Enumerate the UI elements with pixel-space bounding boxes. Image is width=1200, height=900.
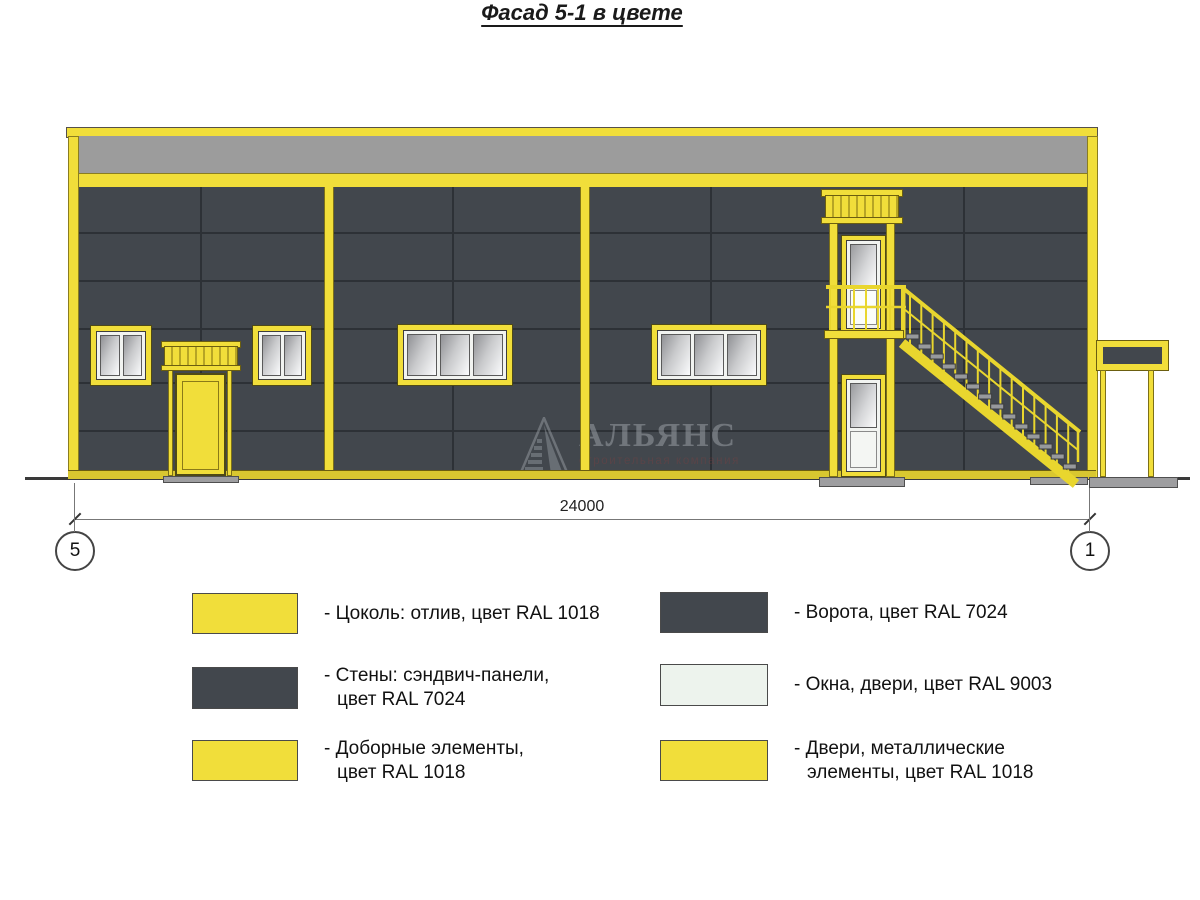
stair-midrail bbox=[904, 309, 1078, 450]
legend-swatch-yellow bbox=[192, 740, 298, 781]
legend-item-plinth: - Цоколь: отлив, цвет RAL 1018 bbox=[192, 593, 600, 634]
stair-tread bbox=[1039, 444, 1052, 449]
stair-tread bbox=[979, 394, 992, 399]
legend-swatch-dark-gray bbox=[660, 592, 768, 633]
drawing-title: Фасад 5-1 в цвете bbox=[0, 0, 1164, 26]
door-leaf bbox=[182, 381, 219, 470]
window-pane bbox=[407, 334, 437, 376]
alliance-triangle-logo-icon bbox=[518, 417, 570, 478]
legend-label: - Ворота, цвет RAL 7024 bbox=[794, 601, 1008, 625]
right-canopy-frame bbox=[1097, 341, 1168, 370]
window-triple-2 bbox=[651, 324, 767, 386]
watermark: АЛЬЯНС строительная компания bbox=[518, 417, 740, 478]
legend-swatch-dark-gray bbox=[192, 667, 298, 709]
stair-tread bbox=[1063, 464, 1076, 469]
right-canopy-pad bbox=[1089, 477, 1178, 488]
entrance-canopy-base bbox=[161, 365, 241, 371]
grid-axis-marker-5: 5 bbox=[55, 531, 95, 571]
exterior-staircase bbox=[820, 275, 1092, 490]
window-pane bbox=[694, 334, 724, 376]
legend-swatch-yellow bbox=[660, 740, 768, 781]
right-canopy-post-left bbox=[1100, 370, 1106, 477]
right-canopy-post-right bbox=[1148, 370, 1154, 477]
facade-column-trim bbox=[324, 187, 334, 471]
legend-swatch-yellow bbox=[192, 593, 298, 634]
window-sash bbox=[96, 331, 146, 380]
window-sash bbox=[258, 331, 306, 380]
stair-tread bbox=[991, 404, 1004, 409]
legend-item-gates: - Ворота, цвет RAL 7024 bbox=[660, 592, 1008, 633]
stair-tread bbox=[1003, 414, 1016, 419]
stair-tread bbox=[1051, 454, 1064, 459]
window-double-1 bbox=[90, 325, 152, 386]
window-pane bbox=[473, 334, 503, 376]
legend-swatch-white bbox=[660, 664, 768, 706]
stair-tread bbox=[942, 364, 955, 369]
window-pane bbox=[262, 335, 281, 376]
legend-label: - Двери, металлические элементы, цвет RA… bbox=[794, 737, 1033, 784]
legend-label: - Цоколь: отлив, цвет RAL 1018 bbox=[324, 602, 600, 626]
legend-item-metal-doors: - Двери, металлические элементы, цвет RA… bbox=[660, 737, 1033, 784]
metal-door-yellow bbox=[175, 373, 226, 476]
window-pane bbox=[123, 335, 143, 376]
door-threshold-pad bbox=[163, 476, 239, 483]
window-pane bbox=[661, 334, 691, 376]
stair-tread bbox=[906, 334, 919, 339]
window-sash bbox=[403, 330, 507, 380]
parapet-band bbox=[77, 136, 1089, 174]
window-sash bbox=[657, 330, 761, 380]
corner-column-left bbox=[68, 136, 79, 479]
stair-tread bbox=[918, 344, 931, 349]
watermark-name: АЛЬЯНС bbox=[579, 417, 740, 454]
entrance-canopy bbox=[164, 346, 238, 367]
stair-tread bbox=[930, 354, 943, 359]
facade-column-trim bbox=[580, 187, 590, 471]
legend-item-walls: - Стены: сэндвич-панели, цвет RAL 7024 bbox=[192, 664, 549, 711]
watermark-subtitle: строительная компания bbox=[579, 455, 740, 467]
legend-label: - Окна, двери, цвет RAL 9003 bbox=[794, 673, 1052, 697]
window-pane bbox=[100, 335, 120, 376]
stair-tread bbox=[1015, 424, 1028, 429]
stair-tread bbox=[954, 374, 967, 379]
watermark-text: АЛЬЯНС строительная компания bbox=[579, 417, 740, 467]
window-pane bbox=[440, 334, 470, 376]
canopy-post-right bbox=[227, 369, 232, 476]
legend-item-trim-elements: - Доборные элементы, цвет RAL 1018 bbox=[192, 737, 524, 784]
window-double-2 bbox=[252, 325, 312, 386]
window-triple-1 bbox=[397, 324, 513, 386]
window-pane bbox=[727, 334, 757, 376]
canopy-post-left bbox=[168, 369, 173, 476]
dimension-label: 24000 bbox=[482, 498, 682, 516]
grid-axis-marker-1: 1 bbox=[1070, 531, 1110, 571]
dimension-line bbox=[75, 519, 1090, 520]
tower-canopy bbox=[825, 195, 899, 219]
stair-tread bbox=[967, 384, 980, 389]
stair-tread bbox=[1027, 434, 1040, 439]
window-pane bbox=[284, 335, 303, 376]
extension-line-left bbox=[74, 483, 75, 532]
legend-label: - Стены: сэндвич-панели, цвет RAL 7024 bbox=[324, 664, 549, 711]
extension-line-right bbox=[1089, 483, 1090, 532]
facade-drawing-sheet: Фасад 5-1 в цвете АЛЬЯНС строительная ко… bbox=[0, 0, 1200, 900]
legend-item-windows-doors: - Окна, двери, цвет RAL 9003 bbox=[660, 664, 1052, 706]
legend-label: - Доборные элементы, цвет RAL 1018 bbox=[324, 737, 524, 784]
stair-landing-platform bbox=[824, 330, 904, 339]
tower-canopy-base bbox=[821, 217, 903, 224]
